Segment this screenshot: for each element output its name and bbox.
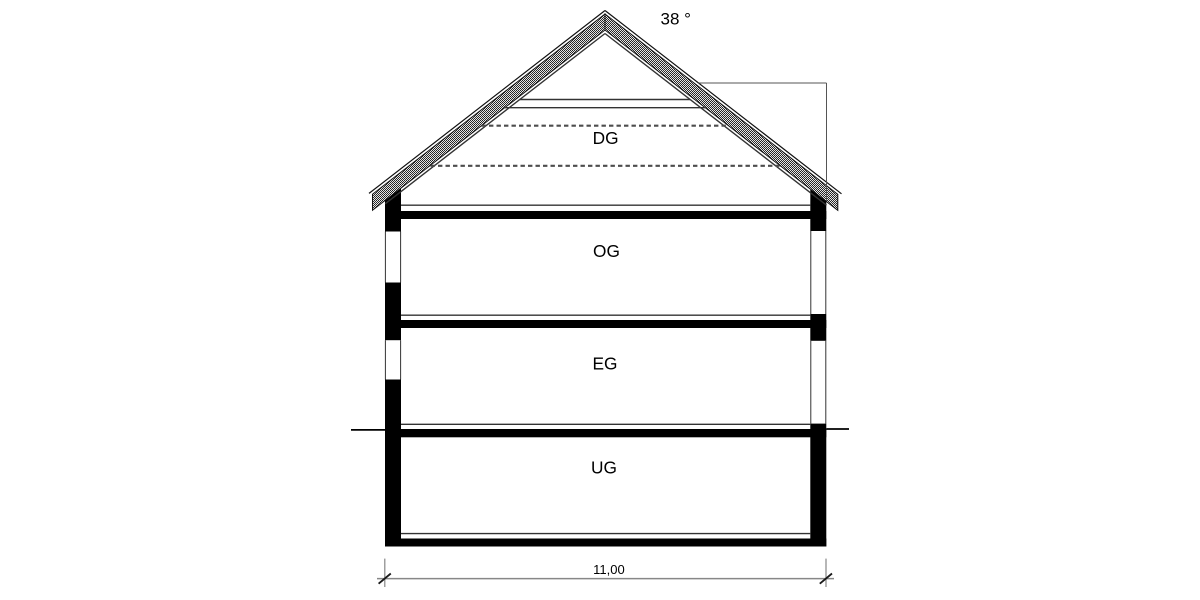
svg-text:OG: OG [593,241,620,261]
svg-text:11,00: 11,00 [593,562,625,577]
svg-text:EG: EG [593,354,618,374]
svg-text:DG: DG [593,128,619,148]
svg-text:UG: UG [591,457,617,477]
svg-text:38 °: 38 ° [661,10,691,29]
